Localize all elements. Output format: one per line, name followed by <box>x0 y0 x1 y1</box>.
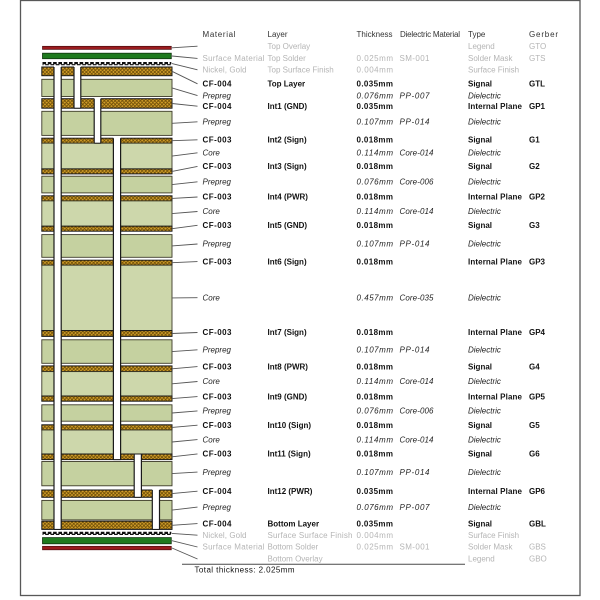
svg-text:Dielectric: Dielectric <box>468 240 501 249</box>
svg-text:Dielectric: Dielectric <box>468 91 501 100</box>
svg-text:Dielectric: Dielectric <box>468 293 501 302</box>
svg-text:Internal Plane: Internal Plane <box>468 257 523 266</box>
svg-text:0.018mm: 0.018mm <box>357 421 394 430</box>
svg-text:GBS: GBS <box>529 543 546 552</box>
svg-text:CF-003: CF-003 <box>203 392 233 401</box>
svg-text:Top Solder: Top Solder <box>268 54 307 63</box>
svg-text:Int10 (Sign): Int10 (Sign) <box>268 421 312 430</box>
svg-text:Surface Material: Surface Material <box>203 543 265 552</box>
svg-text:Legend: Legend <box>468 555 495 564</box>
svg-text:Bottom Solder: Bottom Solder <box>268 543 319 552</box>
svg-text:Core: Core <box>203 148 221 157</box>
svg-text:Core: Core <box>203 207 221 216</box>
svg-text:Prepreg: Prepreg <box>203 407 232 416</box>
svg-text:0.076mm: 0.076mm <box>357 91 394 100</box>
svg-text:Solder Mask: Solder Mask <box>468 543 513 552</box>
svg-text:GTO: GTO <box>529 42 546 51</box>
svg-text:PP-014: PP-014 <box>400 468 431 477</box>
svg-text:Dielectric: Dielectric <box>468 178 501 187</box>
svg-text:Surface Material: Surface Material <box>203 54 265 63</box>
svg-text:Prepreg: Prepreg <box>203 468 232 477</box>
svg-text:Surface Surface Finish: Surface Surface Finish <box>268 531 353 540</box>
svg-text:Bottom Overlay: Bottom Overlay <box>268 555 323 564</box>
svg-text:0.076mm: 0.076mm <box>357 407 394 416</box>
svg-text:Prepreg: Prepreg <box>203 178 232 187</box>
svg-text:Signal: Signal <box>468 80 492 89</box>
svg-text:Int2 (Sign): Int2 (Sign) <box>268 135 307 144</box>
svg-text:Surface Finish: Surface Finish <box>468 66 519 75</box>
svg-text:Core-035: Core-035 <box>400 293 435 302</box>
svg-text:G1: G1 <box>529 135 540 144</box>
svg-text:Solder Mask: Solder Mask <box>468 54 513 63</box>
svg-text:Top Surface Finish: Top Surface Finish <box>268 66 334 75</box>
svg-text:G6: G6 <box>529 450 540 459</box>
svg-text:GP1: GP1 <box>529 102 546 111</box>
svg-text:CF-003: CF-003 <box>203 257 233 266</box>
svg-text:Thickness: Thickness <box>357 30 393 39</box>
svg-text:Core-014: Core-014 <box>400 377 435 386</box>
svg-text:0.035mm: 0.035mm <box>357 80 394 89</box>
svg-text:0.018mm: 0.018mm <box>357 162 394 171</box>
svg-text:0.018mm: 0.018mm <box>357 450 394 459</box>
svg-text:0.114mm: 0.114mm <box>357 377 394 386</box>
svg-text:CF-003: CF-003 <box>203 162 233 171</box>
svg-text:Core: Core <box>203 435 221 444</box>
svg-text:Int1 (GND): Int1 (GND) <box>268 102 308 111</box>
svg-text:Core-006: Core-006 <box>400 407 435 416</box>
svg-text:Prepreg: Prepreg <box>203 345 232 354</box>
svg-text:0.114mm: 0.114mm <box>357 207 394 216</box>
svg-text:GBO: GBO <box>529 555 547 564</box>
svg-text:CF-003: CF-003 <box>203 362 233 371</box>
svg-text:Dielectric: Dielectric <box>468 148 501 157</box>
svg-text:CF-003: CF-003 <box>203 421 233 430</box>
svg-text:0.035mm: 0.035mm <box>357 102 394 111</box>
svg-text:GP3: GP3 <box>529 257 546 266</box>
svg-text:Nickel, Gold: Nickel, Gold <box>203 66 247 75</box>
svg-text:GBL: GBL <box>529 519 546 528</box>
svg-text:Dielectric: Dielectric <box>468 468 501 477</box>
svg-text:0.114mm: 0.114mm <box>357 435 394 444</box>
svg-text:GTS: GTS <box>529 54 545 63</box>
svg-text:0.004mm: 0.004mm <box>357 66 394 75</box>
svg-text:G2: G2 <box>529 162 540 171</box>
svg-text:CF-004: CF-004 <box>203 102 233 111</box>
svg-text:0.025mm: 0.025mm <box>357 543 394 552</box>
svg-text:PP-014: PP-014 <box>400 345 431 354</box>
svg-text:Total thickness: 2.025mm: Total thickness: 2.025mm <box>195 566 295 575</box>
svg-text:PP-014: PP-014 <box>400 118 431 127</box>
svg-text:Signal: Signal <box>468 519 492 528</box>
svg-text:Dielectric: Dielectric <box>468 118 501 127</box>
svg-text:Int4 (PWR): Int4 (PWR) <box>268 193 309 202</box>
svg-text:Internal Plane: Internal Plane <box>468 193 523 202</box>
svg-text:0.018mm: 0.018mm <box>357 193 394 202</box>
svg-text:Prepreg: Prepreg <box>203 91 232 100</box>
svg-text:Int3 (Sign): Int3 (Sign) <box>268 162 307 171</box>
svg-text:Signal: Signal <box>468 221 492 230</box>
svg-text:Nickel, Gold: Nickel, Gold <box>203 531 247 540</box>
svg-text:Int5 (GND): Int5 (GND) <box>268 221 308 230</box>
svg-text:CF-004: CF-004 <box>203 80 233 89</box>
svg-text:Dielectric Material: Dielectric Material <box>400 30 460 39</box>
svg-text:PP-007: PP-007 <box>400 503 431 512</box>
svg-text:Prepreg: Prepreg <box>203 118 232 127</box>
svg-text:CF-004: CF-004 <box>203 487 233 496</box>
svg-text:Dielectric: Dielectric <box>468 345 501 354</box>
svg-text:Dielectric: Dielectric <box>468 435 501 444</box>
svg-text:GP5: GP5 <box>529 392 546 401</box>
svg-text:Surface Finish: Surface Finish <box>468 531 519 540</box>
svg-text:0.018mm: 0.018mm <box>357 135 394 144</box>
svg-text:Int11 (Sign): Int11 (Sign) <box>268 450 311 459</box>
svg-text:Signal: Signal <box>468 421 492 430</box>
svg-text:CF-003: CF-003 <box>203 193 233 202</box>
svg-text:Internal Plane: Internal Plane <box>468 102 523 111</box>
svg-text:Int7 (Sign): Int7 (Sign) <box>268 328 307 337</box>
svg-text:G4: G4 <box>529 362 540 371</box>
svg-text:Signal: Signal <box>468 135 492 144</box>
svg-text:0.018mm: 0.018mm <box>357 362 394 371</box>
svg-text:Type: Type <box>468 30 486 39</box>
svg-text:Signal: Signal <box>468 450 492 459</box>
svg-text:Core: Core <box>203 377 221 386</box>
svg-text:0.076mm: 0.076mm <box>357 503 394 512</box>
svg-text:Dielectric: Dielectric <box>468 377 501 386</box>
svg-text:Core-014: Core-014 <box>400 148 435 157</box>
svg-text:0.035mm: 0.035mm <box>357 487 394 496</box>
svg-text:0.018mm: 0.018mm <box>357 392 394 401</box>
svg-text:GTL: GTL <box>529 80 545 89</box>
svg-text:Legend: Legend <box>468 42 495 51</box>
svg-text:0.025mm: 0.025mm <box>357 54 394 63</box>
svg-text:GP2: GP2 <box>529 193 546 202</box>
svg-text:SM-001: SM-001 <box>400 543 431 552</box>
svg-text:CF-003: CF-003 <box>203 135 233 144</box>
svg-text:Material: Material <box>203 30 236 39</box>
svg-text:Signal: Signal <box>468 162 492 171</box>
svg-text:Core-014: Core-014 <box>400 435 435 444</box>
svg-text:0.076mm: 0.076mm <box>357 178 394 187</box>
svg-text:SM-001: SM-001 <box>400 54 431 63</box>
svg-text:PP-007: PP-007 <box>400 91 431 100</box>
svg-text:GP6: GP6 <box>529 487 546 496</box>
svg-text:Int8 (PWR): Int8 (PWR) <box>268 362 309 371</box>
svg-text:Core-006: Core-006 <box>400 178 435 187</box>
svg-text:CF-004: CF-004 <box>203 519 233 528</box>
svg-text:0.018mm: 0.018mm <box>357 221 394 230</box>
svg-text:Internal Plane: Internal Plane <box>468 328 523 337</box>
svg-text:0.107mm: 0.107mm <box>357 468 394 477</box>
svg-text:Core: Core <box>203 293 221 302</box>
svg-text:Internal Plane: Internal Plane <box>468 392 523 401</box>
svg-text:0.004mm: 0.004mm <box>357 531 394 540</box>
svg-text:Int6 (Sign): Int6 (Sign) <box>268 257 307 266</box>
svg-text:0.114mm: 0.114mm <box>357 148 394 157</box>
svg-text:Int9 (GND): Int9 (GND) <box>268 392 308 401</box>
svg-text:CF-003: CF-003 <box>203 328 233 337</box>
svg-text:Dielectric: Dielectric <box>468 503 501 512</box>
svg-text:Internal Plane: Internal Plane <box>468 487 523 496</box>
svg-text:Layer: Layer <box>268 30 288 39</box>
svg-text:Top Overlay: Top Overlay <box>268 42 311 51</box>
svg-text:Core-014: Core-014 <box>400 207 435 216</box>
svg-text:Bottom Layer: Bottom Layer <box>268 519 320 528</box>
svg-text:0.107mm: 0.107mm <box>357 240 394 249</box>
svg-text:0.107mm: 0.107mm <box>357 118 394 127</box>
svg-text:0.107mm: 0.107mm <box>357 345 394 354</box>
svg-text:Signal: Signal <box>468 362 492 371</box>
svg-text:Prepreg: Prepreg <box>203 240 232 249</box>
svg-text:Gerber: Gerber <box>529 30 558 39</box>
svg-text:PP-014: PP-014 <box>400 240 431 249</box>
svg-text:CF-003: CF-003 <box>203 221 233 230</box>
svg-text:G5: G5 <box>529 421 540 430</box>
svg-text:Int12 (PWR): Int12 (PWR) <box>268 487 313 496</box>
svg-text:CF-003: CF-003 <box>203 450 233 459</box>
svg-text:0.035mm: 0.035mm <box>357 519 394 528</box>
svg-text:0.018mm: 0.018mm <box>357 257 394 266</box>
svg-text:Dielectric: Dielectric <box>468 207 501 216</box>
svg-text:Top Layer: Top Layer <box>268 80 306 89</box>
svg-text:GP4: GP4 <box>529 328 546 337</box>
svg-text:Dielectric: Dielectric <box>468 407 501 416</box>
svg-text:0.018mm: 0.018mm <box>357 328 394 337</box>
svg-text:0.457mm: 0.457mm <box>357 293 394 302</box>
svg-text:G3: G3 <box>529 221 540 230</box>
svg-text:Prepreg: Prepreg <box>203 503 232 512</box>
